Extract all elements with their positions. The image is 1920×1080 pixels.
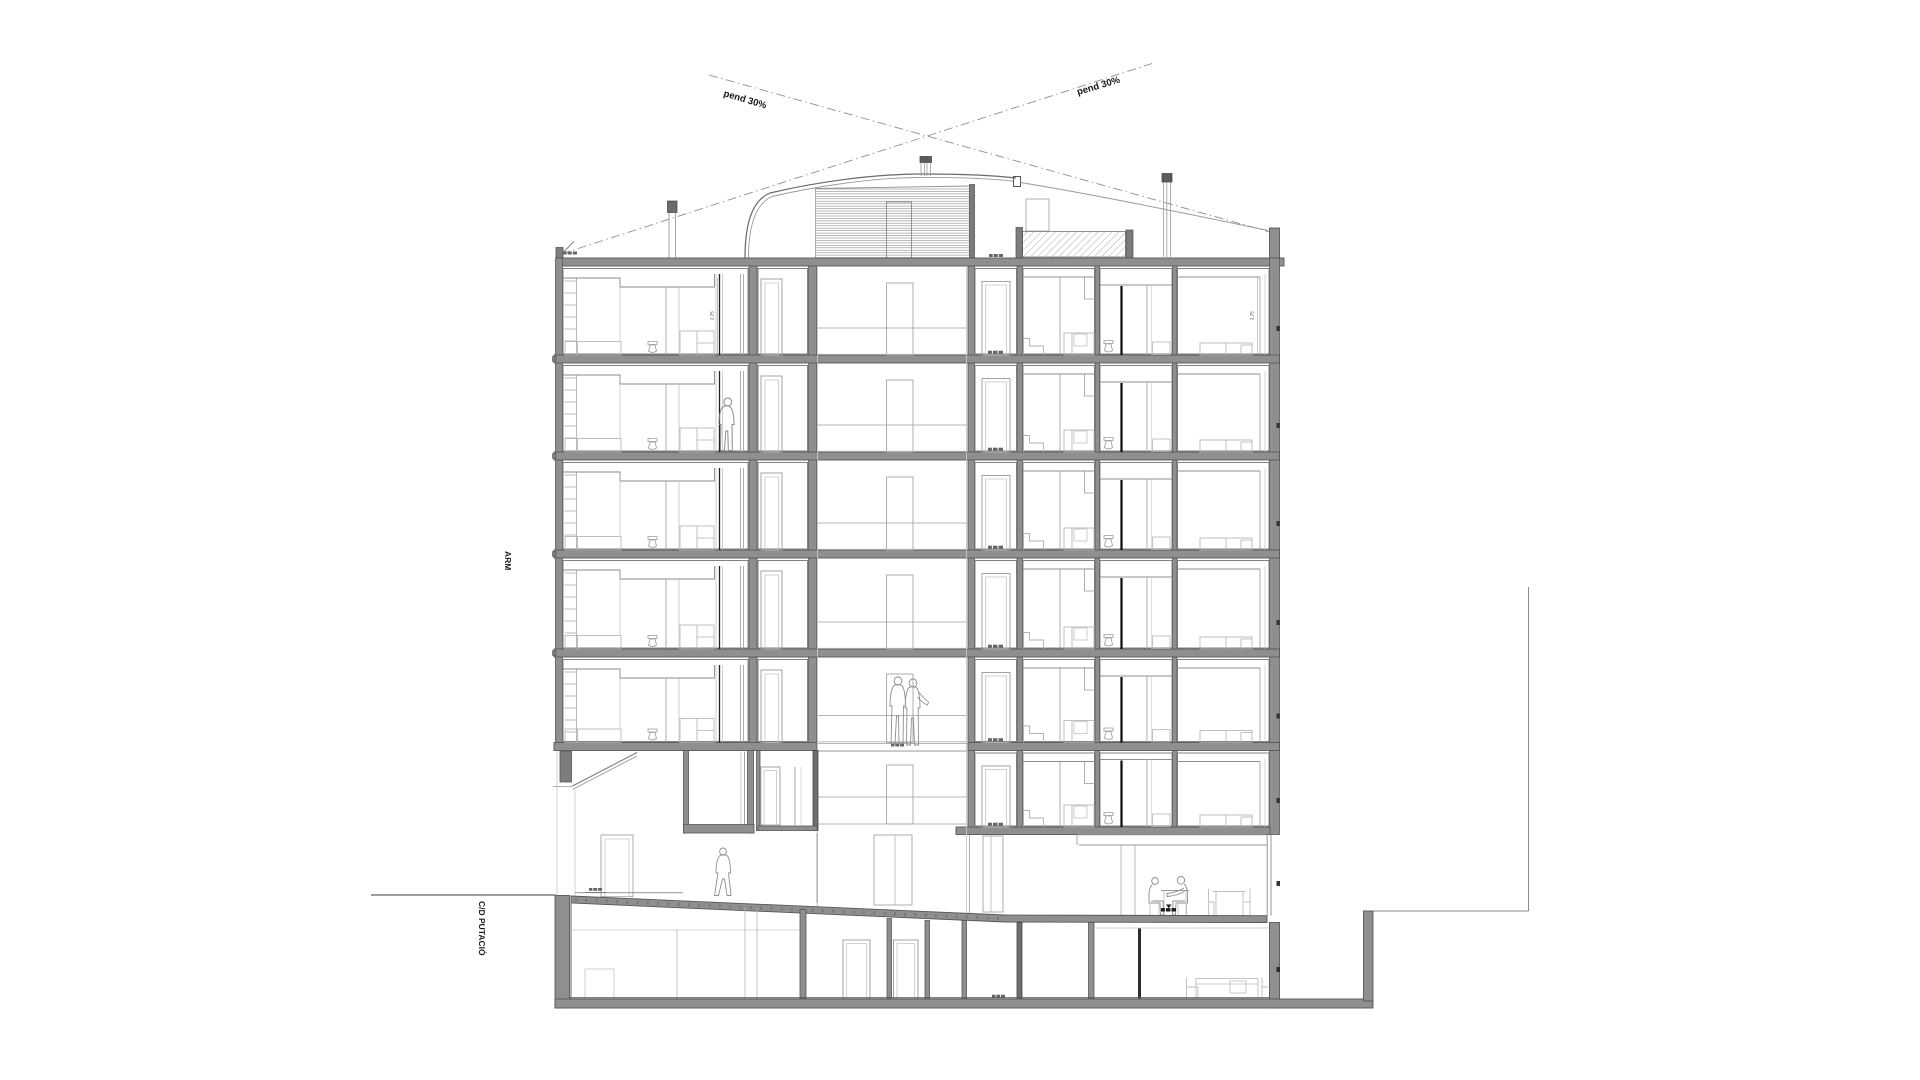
svg-text:2.75: 2.75 [1250,311,1255,320]
svg-text:C/D PUTACIÓ: C/D PUTACIÓ [477,901,487,956]
svg-text:ARM: ARM [503,551,513,570]
svg-text:2.75: 2.75 [710,311,715,320]
